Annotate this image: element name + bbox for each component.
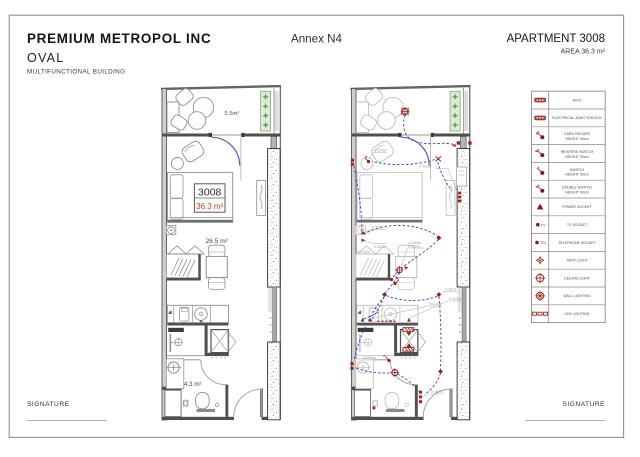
svg-text:h=30cm: h=30cm	[445, 288, 457, 292]
svg-text:h=110cm: h=110cm	[374, 149, 387, 153]
svg-text:PREMIUM METROPOL INC: PREMIUM METROPOL INC	[27, 31, 211, 46]
svg-text:SIGNATURE: SIGNATURE	[27, 401, 70, 408]
svg-text:POWER SOCKET: POWER SOCKET	[562, 205, 592, 209]
svg-text:SIGNATURE: SIGNATURE	[563, 401, 606, 408]
svg-text:WI-FI: WI-FI	[573, 98, 582, 102]
svg-text:HEIGHT 90cm: HEIGHT 90cm	[565, 155, 588, 159]
svg-text:LED LIGHTING: LED LIGHTING	[565, 312, 590, 316]
svg-text:Annex N4: Annex N4	[291, 33, 342, 46]
svg-text:5.5m²: 5.5m²	[225, 111, 240, 117]
svg-text:36.3 m²: 36.3 m²	[196, 202, 223, 211]
svg-text:HEIGHT 90cm: HEIGHT 90cm	[565, 190, 588, 194]
svg-text:WALL LIGHTING: WALL LIGHTING	[563, 294, 591, 298]
svg-text:h=30cm: h=30cm	[431, 390, 443, 394]
svg-text:3008: 3008	[198, 186, 222, 198]
svg-text:APARTMENT 3008: APARTMENT 3008	[507, 33, 605, 45]
svg-text:4.3 m²: 4.3 m²	[184, 381, 202, 388]
svg-text:SWITCH: SWITCH	[570, 168, 585, 172]
svg-text:26.5 m²: 26.5 m²	[206, 238, 229, 245]
svg-text:TEL: TEL	[540, 241, 547, 245]
svg-text:MULTIFUNCTIONAL BUILDING: MULTIFUNCTIONAL BUILDING	[27, 69, 125, 76]
svg-text:h=120cm: h=120cm	[363, 356, 377, 360]
svg-text:h=110cm: h=110cm	[429, 302, 442, 306]
svg-text:CEILING LIGHT: CEILING LIGHT	[564, 276, 591, 280]
svg-text:TV: TV	[541, 223, 546, 227]
svg-text:HEIGHT 90cm: HEIGHT 90cm	[565, 173, 588, 177]
svg-text:h=30cm: h=30cm	[408, 245, 420, 249]
svg-text:OVAL: OVAL	[27, 51, 64, 65]
svg-text:TV SOCKET: TV SOCKET	[567, 223, 588, 227]
svg-text:h=0.00m: h=0.00m	[357, 250, 370, 254]
svg-text:DOUBLE SWITCH: DOUBLE SWITCH	[562, 186, 592, 190]
svg-text:REVERSE SWITCH: REVERSE SWITCH	[561, 150, 594, 154]
svg-text:ELECTRICAL JUNCTION BOX: ELECTRICAL JUNCTION BOX	[552, 116, 602, 120]
svg-text:AREA 36.3 m²: AREA 36.3 m²	[561, 49, 606, 56]
svg-text:h=110cm: h=110cm	[449, 297, 462, 301]
svg-text:CARD HOLDER: CARD HOLDER	[564, 132, 591, 136]
svg-text:SPOT LIGHT: SPOT LIGHT	[566, 259, 588, 263]
svg-text:h=30cm: h=30cm	[374, 245, 386, 249]
svg-text:h=30cm: h=30cm	[372, 226, 384, 230]
svg-text:h=130cm: h=130cm	[419, 165, 433, 169]
svg-text:HEIGHT 90cm: HEIGHT 90cm	[565, 137, 588, 141]
svg-text:TELEPHONE SOCKET: TELEPHONE SOCKET	[558, 241, 596, 245]
